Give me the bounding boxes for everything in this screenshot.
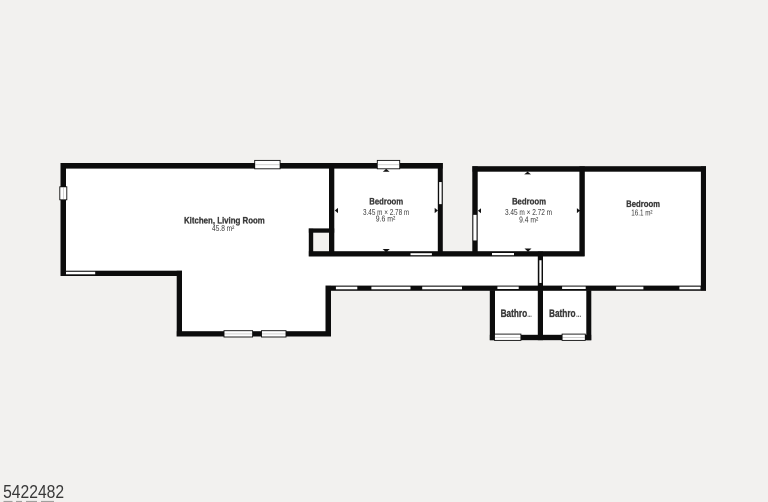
svg-text:5422482: 5422482 — [3, 481, 64, 502]
svg-text:…: … — [527, 309, 532, 319]
svg-text:Bedroom: Bedroom — [369, 196, 403, 206]
svg-text:Bedroom: Bedroom — [512, 196, 546, 206]
svg-text:…: … — [576, 309, 581, 319]
svg-text:Bathro: Bathro — [501, 308, 528, 320]
svg-text:Bedroom: Bedroom — [626, 199, 660, 209]
svg-text:Bathro: Bathro — [549, 308, 576, 320]
svg-text:9.6 m²: 9.6 m² — [376, 214, 396, 223]
svg-text:9.4 m²: 9.4 m² — [519, 215, 538, 224]
svg-text:45.8 m²: 45.8 m² — [212, 224, 235, 233]
svg-text:16.1 m²: 16.1 m² — [631, 208, 652, 217]
